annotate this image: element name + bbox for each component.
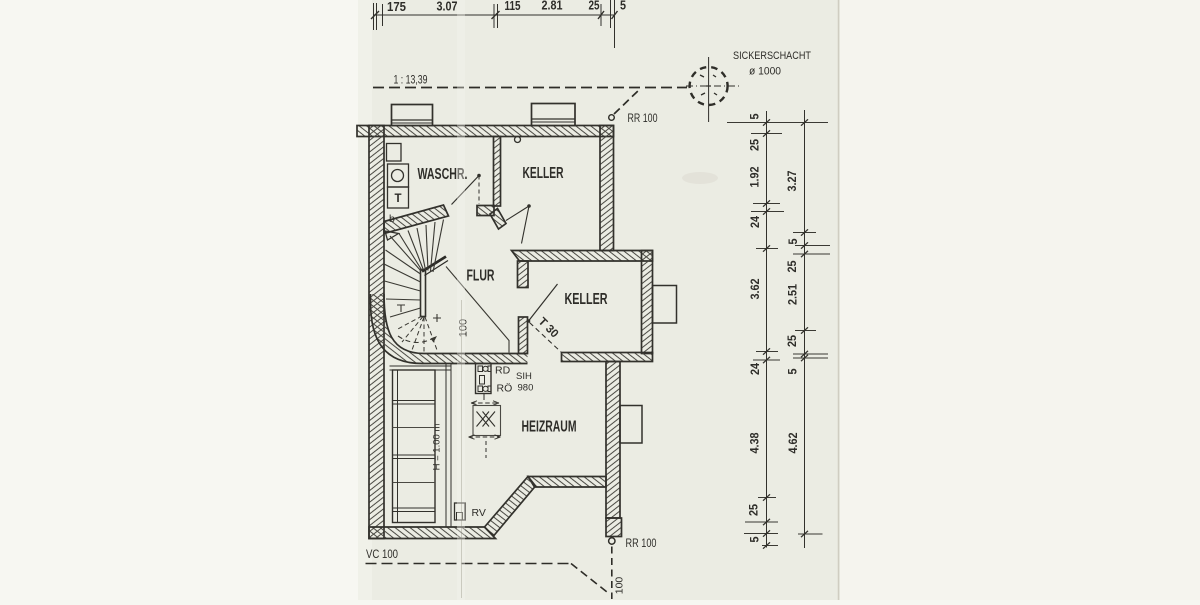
- svg-text:VC 100: VC 100: [366, 549, 398, 561]
- svg-text:KELLER: KELLER: [565, 291, 608, 308]
- svg-text:SICKERSCHACHT: SICKERSCHACHT: [733, 50, 811, 62]
- svg-text:5: 5: [748, 536, 762, 542]
- svg-text:RR 100: RR 100: [626, 538, 657, 550]
- svg-text:RV: RV: [472, 507, 486, 519]
- svg-text:RR 100: RR 100: [628, 113, 658, 125]
- svg-text:25: 25: [747, 504, 761, 516]
- svg-text:5: 5: [786, 368, 800, 374]
- svg-text:1.92: 1.92: [748, 166, 762, 187]
- svg-text:ø 1000: ø 1000: [749, 66, 781, 78]
- svg-text:2.51: 2.51: [786, 284, 800, 305]
- svg-text:H = 1.00 m: H = 1.00 m: [432, 424, 443, 471]
- svg-text:4.38: 4.38: [748, 432, 762, 453]
- svg-text:24: 24: [748, 216, 762, 228]
- svg-text:25: 25: [589, 0, 600, 13]
- svg-text:115: 115: [505, 0, 521, 13]
- svg-text:25: 25: [785, 260, 799, 272]
- svg-text:KELLER: KELLER: [523, 165, 564, 182]
- svg-text:b: b: [389, 213, 395, 225]
- svg-text:25: 25: [785, 335, 799, 347]
- svg-text:3.62: 3.62: [748, 278, 762, 299]
- svg-text:HEIZRAUM: HEIZRAUM: [522, 419, 577, 436]
- svg-text:1 : 13,39: 1 : 13,39: [394, 75, 428, 87]
- svg-text:5: 5: [786, 238, 800, 244]
- svg-text:100: 100: [614, 577, 626, 595]
- svg-text:980: 980: [518, 383, 534, 394]
- svg-text:175: 175: [387, 0, 406, 14]
- svg-text:3.27: 3.27: [785, 170, 799, 191]
- svg-text:RÖ: RÖ: [497, 383, 513, 395]
- svg-text:FLUR: FLUR: [467, 268, 495, 285]
- svg-text:24: 24: [748, 363, 762, 375]
- svg-text:RD: RD: [495, 365, 511, 377]
- svg-text:5: 5: [748, 113, 762, 119]
- svg-text:2.81: 2.81: [542, 0, 563, 13]
- svg-text:3.07: 3.07: [437, 0, 458, 14]
- svg-text:25: 25: [748, 139, 762, 151]
- svg-text:SIH: SIH: [516, 371, 532, 382]
- svg-text:4.62: 4.62: [786, 432, 800, 453]
- svg-text:5: 5: [620, 0, 626, 13]
- svg-text:T: T: [395, 193, 402, 205]
